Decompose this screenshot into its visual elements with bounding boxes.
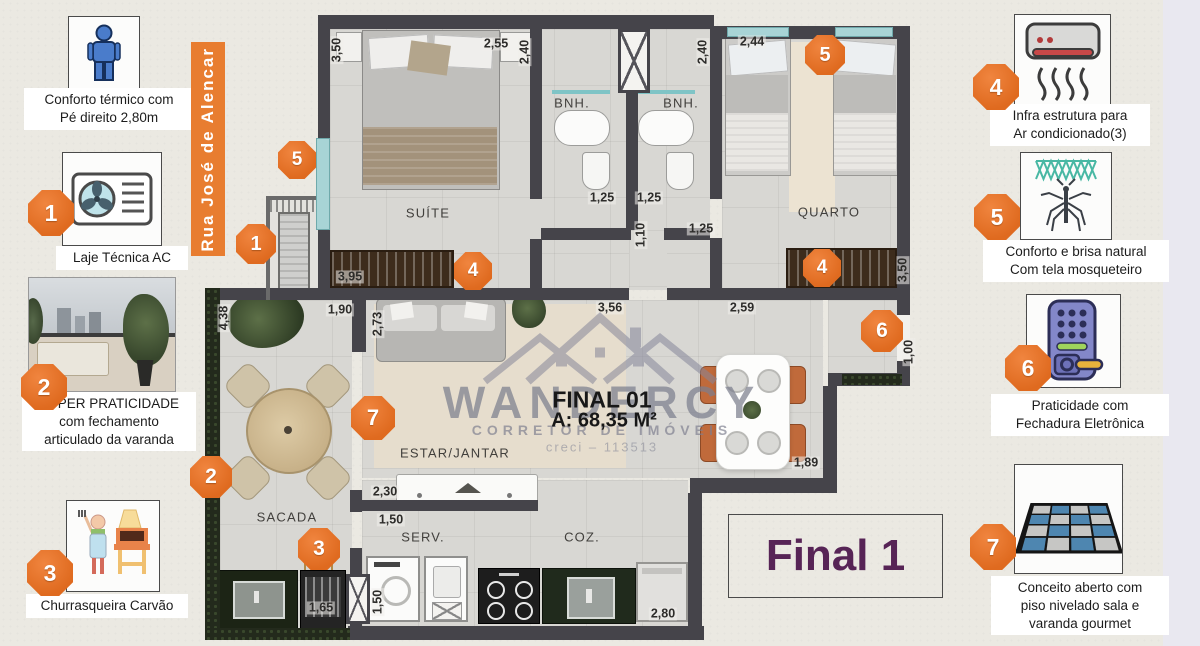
- bbq-icon: [66, 500, 160, 592]
- wall-segment: [348, 626, 704, 640]
- wall-segment: [823, 386, 837, 481]
- dimension-label: 2,40: [696, 38, 709, 66]
- bathroom-sink: [554, 110, 610, 146]
- dimension-label: 2,55: [482, 37, 510, 50]
- dimension-label: 1,90: [326, 303, 354, 316]
- wall-segment: [688, 493, 702, 640]
- final-unit-text: Final 1: [766, 531, 905, 581]
- dimension-label: 1,00: [902, 338, 915, 366]
- dimension-label: 1,25: [588, 191, 616, 204]
- annotation-badge: 4: [973, 64, 1019, 110]
- wall-segment: [710, 238, 722, 288]
- dimension-label: 3,95: [336, 270, 364, 283]
- dimension-label: 3,50: [330, 36, 343, 64]
- sacada-planter-wall: [205, 628, 355, 640]
- dimension-label: 3,56: [596, 301, 624, 314]
- wall-segment: [710, 39, 722, 199]
- shaft: [618, 29, 650, 93]
- wall-segment: [690, 478, 837, 493]
- mosquito-net-icon: [1020, 152, 1112, 240]
- shaft: [346, 574, 370, 624]
- kitchen-island: [396, 474, 538, 503]
- plan-badge: 1: [236, 224, 276, 264]
- annotation-text: Conforto e brisa natural Com tela mosque…: [983, 240, 1169, 282]
- dimension-label: 1,65: [307, 601, 335, 614]
- dimension-label: 1,89: [792, 456, 820, 469]
- dimension-label: 1,50: [377, 513, 405, 526]
- quarto-wardrobe: [786, 248, 897, 288]
- street-name-banner: Rua José de Alencar: [191, 42, 225, 256]
- dimension-label: 1,25: [687, 222, 715, 235]
- dimension-label: 1,25: [635, 191, 663, 204]
- annotation-text: Conceito aberto com piso nivelado sala e…: [991, 576, 1169, 635]
- wall-segment: [626, 93, 638, 230]
- dimension-label: 4,38: [217, 304, 230, 332]
- dimension-label: 2,40: [518, 38, 531, 66]
- tiled-floor-graphic: [1014, 503, 1122, 554]
- plan-badge: 5: [805, 35, 845, 75]
- street-name: Rua José de Alencar: [198, 47, 218, 252]
- single-bed: [725, 38, 791, 176]
- annotation-text: Praticidade com Fechadura Eletrônica: [991, 394, 1169, 436]
- ac-fan-icon: [62, 152, 162, 246]
- dimension-label: 2,30: [371, 485, 399, 498]
- round-table: [246, 388, 332, 474]
- annotation-badge: 6: [1005, 345, 1051, 391]
- sofa: [376, 298, 506, 362]
- dimension-label: 2,59: [728, 301, 756, 314]
- vent-hatch: [270, 200, 318, 212]
- room-label-serv: SERV.: [401, 530, 445, 545]
- room-label-bnh: BNH.: [554, 96, 590, 111]
- room-label-sacada: SACADA: [257, 510, 318, 525]
- room-label-coz: COZ.: [564, 530, 600, 545]
- person-icon: [68, 16, 140, 90]
- room-label-quarto: QUARTO: [798, 205, 860, 220]
- wall-segment: [530, 29, 542, 199]
- plan-badge: 4: [803, 249, 841, 287]
- annotation-badge: 5: [974, 194, 1020, 240]
- laundry-sink: [424, 556, 468, 622]
- room-label-estar: ESTAR/JANTAR: [400, 446, 510, 461]
- stove-cooktop: [478, 568, 540, 624]
- room-label-bnh: BNH.: [663, 96, 699, 111]
- annotation-text: Infra estrutura para Ar condicionado(3): [990, 104, 1150, 146]
- kitchen-counter-sink: [542, 568, 636, 624]
- toilet: [582, 152, 610, 190]
- floor-plan-flyer: Conforto térmico com Pé direito 2,80m La…: [0, 0, 1200, 646]
- wall-segment: [350, 490, 362, 512]
- plan-badge: 5: [278, 141, 316, 179]
- ac-wall-unit-icon: [1014, 14, 1111, 110]
- annotation-text: Laje Técnica AC: [56, 246, 188, 270]
- shower-glass: [552, 90, 610, 94]
- page-margin: [1163, 0, 1200, 646]
- toilet: [666, 152, 694, 190]
- wall-segment: [530, 239, 542, 288]
- tiled-floor-icon: [1014, 464, 1123, 574]
- dimension-label: 1,10: [634, 221, 647, 249]
- annotation-badge: 7: [970, 524, 1016, 570]
- wall-segment: [710, 288, 910, 300]
- annotation-text: Churrasqueira Carvão: [26, 594, 188, 618]
- wall-segment: [667, 288, 710, 300]
- wall-segment: [362, 500, 538, 511]
- annotation-text: Conforto térmico com Pé direito 2,80m: [24, 88, 194, 130]
- dimension-label: 2,73: [371, 310, 384, 338]
- wall-segment: [352, 288, 366, 352]
- bathroom-sink: [638, 110, 694, 146]
- room-label-suite: SUÍTE: [406, 206, 450, 221]
- quarto-window: [835, 27, 893, 37]
- dimension-label: 2,44: [738, 35, 766, 48]
- gourmet-counter: [218, 570, 298, 630]
- niche-wall: [266, 196, 320, 200]
- wall-segment: [541, 228, 631, 240]
- dimension-label: 1,50: [371, 588, 384, 616]
- ac-condenser-unit: [278, 212, 310, 290]
- wall-segment: [318, 15, 714, 29]
- final-unit-box: Final 1: [728, 514, 943, 598]
- dimension-label: 2,80: [649, 607, 677, 620]
- suite-bed: [362, 30, 500, 190]
- suite-window: [316, 138, 330, 230]
- plan-badge: 7: [351, 396, 395, 440]
- dining-table: [716, 354, 790, 470]
- plan-badge: 4: [454, 252, 492, 290]
- annotation-badge: 3: [27, 550, 73, 596]
- dimension-label: 3,50: [896, 256, 909, 284]
- entry-hedge: [842, 374, 902, 385]
